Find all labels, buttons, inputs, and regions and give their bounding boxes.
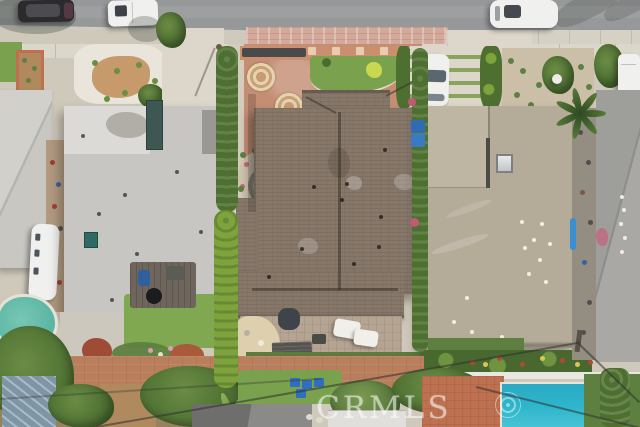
tropical-flowers-yellow [483,362,488,367]
center-house-rear-wing [238,272,404,318]
center-ridge-horizontal [252,288,398,291]
lawn-shrub [322,58,331,67]
bougainvillea-pink-1 [408,98,416,106]
right-roof-vent-strip [486,138,490,188]
blue-trash-bins [411,120,425,133]
side-yard-items [50,160,55,165]
suv-rear-tint [64,3,73,19]
white-rv [28,223,60,300]
aerial-photo: CRMLS [0,0,640,427]
white-dome-object [552,74,562,84]
roof-patch-2 [394,174,414,190]
white-suv [490,0,558,28]
cypress-hedge-lower [214,210,238,388]
right-roof-upper-panel [420,106,490,188]
suv-roof-highlight [26,4,60,18]
bbq-grill [146,288,162,304]
covered-grill [278,308,300,330]
roof-patch-1 [346,176,362,190]
lawn-accent-plant [366,62,382,78]
cypress-hedge-upper [216,46,238,212]
planter-plants [22,58,27,63]
blue-deck-item [138,270,150,286]
right-roof-vents [520,220,524,224]
courtyard-medallion-1 [244,60,278,94]
spiral-plants-green [240,152,246,158]
lounger-2 [353,328,379,347]
solar-panel-strip [146,100,163,150]
left-roof-vents [81,134,85,138]
crmls-watermark: CRMLS [316,390,452,426]
patio-chairs-white [306,414,313,420]
center-ridge-vertical [338,112,341,290]
roof-dark-patch [328,148,350,178]
property-hedge-center-right [412,48,428,352]
far-right-roof-vents [620,195,624,199]
patio-table [312,334,326,344]
feature-rocks [244,330,250,336]
plant-bed-right [480,46,502,108]
wall-pillar-caps [308,47,316,55]
metal-skylight [496,154,513,173]
front-gate [242,48,306,57]
center-roof-vents [312,185,316,189]
blue-surfboard [570,218,576,250]
center-house-main-roof [254,108,420,294]
rv-windows [35,234,40,241]
gravel-yard-plants [508,58,514,64]
roof-patch-3 [298,238,318,254]
xeriscape-shrubs [92,60,98,66]
teal-skylight [84,232,98,248]
deck-storage-box [166,266,184,280]
bougainvillea-pink-2 [410,218,419,227]
dark-suv [18,0,74,22]
house-wall-shadow-on-courtyard [248,94,256,212]
roof-stain [106,112,148,138]
palm-tree [552,84,608,136]
suv-windshield [495,6,500,21]
driveway-tree [156,12,186,48]
van-sunroof [115,5,127,16]
pink-flowers-far-right [596,228,608,246]
small-flowerbed [148,348,153,353]
van-right-panel [621,64,636,65]
suv-sunroof [504,5,521,18]
